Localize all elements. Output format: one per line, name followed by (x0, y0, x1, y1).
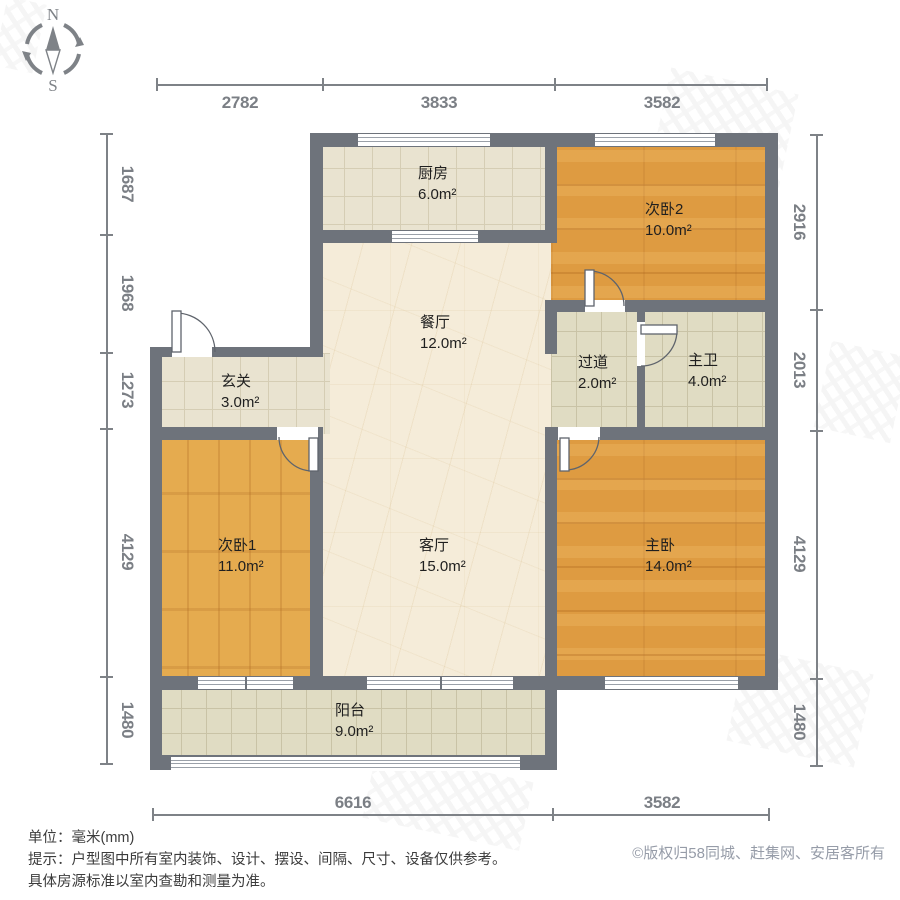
wall (545, 133, 557, 243)
dim-label: 1480 (789, 704, 809, 741)
bedroom2-door-gap (585, 300, 625, 312)
dim-label: 3833 (421, 93, 458, 113)
dimension-line-right (816, 134, 818, 767)
footer-disclaimer-1: 提示：户型图中所有室内装饰、设计、摆设、间隔、尺寸、设备仅供参考。 (28, 848, 507, 869)
compass-south-label: S (48, 76, 57, 95)
balcony-railing-window (171, 757, 520, 771)
dim-tick (766, 78, 768, 91)
watermark (814, 341, 900, 443)
bedroom2-window (595, 134, 715, 146)
dim-tick (810, 430, 823, 432)
room-label-hallway: 过道2.0m² (578, 352, 616, 394)
dim-label: 2916 (789, 204, 809, 241)
room-label-entry: 玄关3.0m² (221, 371, 259, 413)
dim-label: 3582 (644, 93, 681, 113)
dining-living-floor (316, 236, 551, 683)
dim-label: 2782 (222, 93, 259, 113)
master-window (605, 677, 738, 689)
dim-tick (552, 808, 554, 821)
room-label-bedroom2: 次卧210.0m² (645, 199, 692, 241)
dim-label: 1968 (117, 275, 137, 312)
wall (310, 427, 323, 690)
compass-icon: N S (5, 2, 101, 98)
dimension-line-bottom (152, 814, 770, 816)
room-label-dining: 餐厅12.0m² (420, 312, 467, 354)
dim-tick (810, 678, 823, 680)
dim-label: 1480 (117, 702, 137, 739)
dim-tick (554, 78, 556, 91)
dim-tick (322, 78, 324, 91)
room-label-balcony: 阳台9.0m² (335, 700, 373, 742)
dim-label: 4129 (117, 534, 137, 571)
dim-tick (768, 808, 770, 821)
room-label-bedroom1: 次卧111.0m² (218, 535, 264, 577)
dim-tick (100, 676, 113, 678)
master-door-gap (558, 427, 600, 440)
kitchen-window (358, 134, 490, 146)
floor-plan-canvas: 厨房6.0m² 次卧210.0m² 餐厅12.0m² 过道2.0m² 主卫4.0… (0, 0, 900, 900)
room-label-living: 客厅15.0m² (419, 535, 466, 577)
dim-tick (100, 763, 113, 765)
footer-disclaimer-2: 具体房源标准以室内查勘和测量为准。 (28, 870, 275, 891)
entry-door-gap (172, 347, 212, 357)
dim-tick (152, 808, 154, 821)
kitchen-pass-opening (392, 231, 478, 242)
copyright-notice: ©版权归58同城、赶集网、安居客所有 (632, 842, 885, 863)
bedroom1-door-gap (277, 427, 318, 440)
wall (150, 347, 162, 770)
window-divider (440, 677, 442, 689)
dimension-line-top (156, 84, 768, 86)
footer-unit-note: 单位：毫米(mm) (28, 826, 134, 847)
dim-tick (810, 309, 823, 311)
dim-label: 2013 (789, 352, 809, 389)
wall (545, 427, 557, 770)
dim-tick (810, 134, 823, 136)
dim-tick (100, 234, 113, 236)
dimension-line-left (106, 133, 108, 765)
compass-north-label: N (47, 5, 59, 24)
bathroom-door-gap (637, 322, 645, 366)
wall (545, 300, 778, 312)
dim-tick (810, 765, 823, 767)
dim-tick (100, 133, 113, 135)
dim-tick (100, 352, 113, 354)
dim-label: 1273 (117, 372, 137, 409)
dim-tick (100, 428, 113, 430)
dim-label: 3582 (644, 793, 681, 813)
wall (310, 133, 323, 357)
dim-label: 4129 (789, 536, 809, 573)
dim-tick (156, 78, 158, 91)
wall (765, 133, 778, 690)
room-label-bathroom: 主卫4.0m² (688, 350, 726, 392)
dim-label: 1687 (117, 166, 137, 203)
entry-door (172, 311, 215, 352)
room-label-kitchen: 厨房6.0m² (418, 163, 456, 205)
dim-label: 6616 (335, 793, 372, 813)
room-label-master: 主卧14.0m² (645, 535, 692, 577)
window-divider (245, 677, 247, 689)
wall (545, 300, 557, 354)
